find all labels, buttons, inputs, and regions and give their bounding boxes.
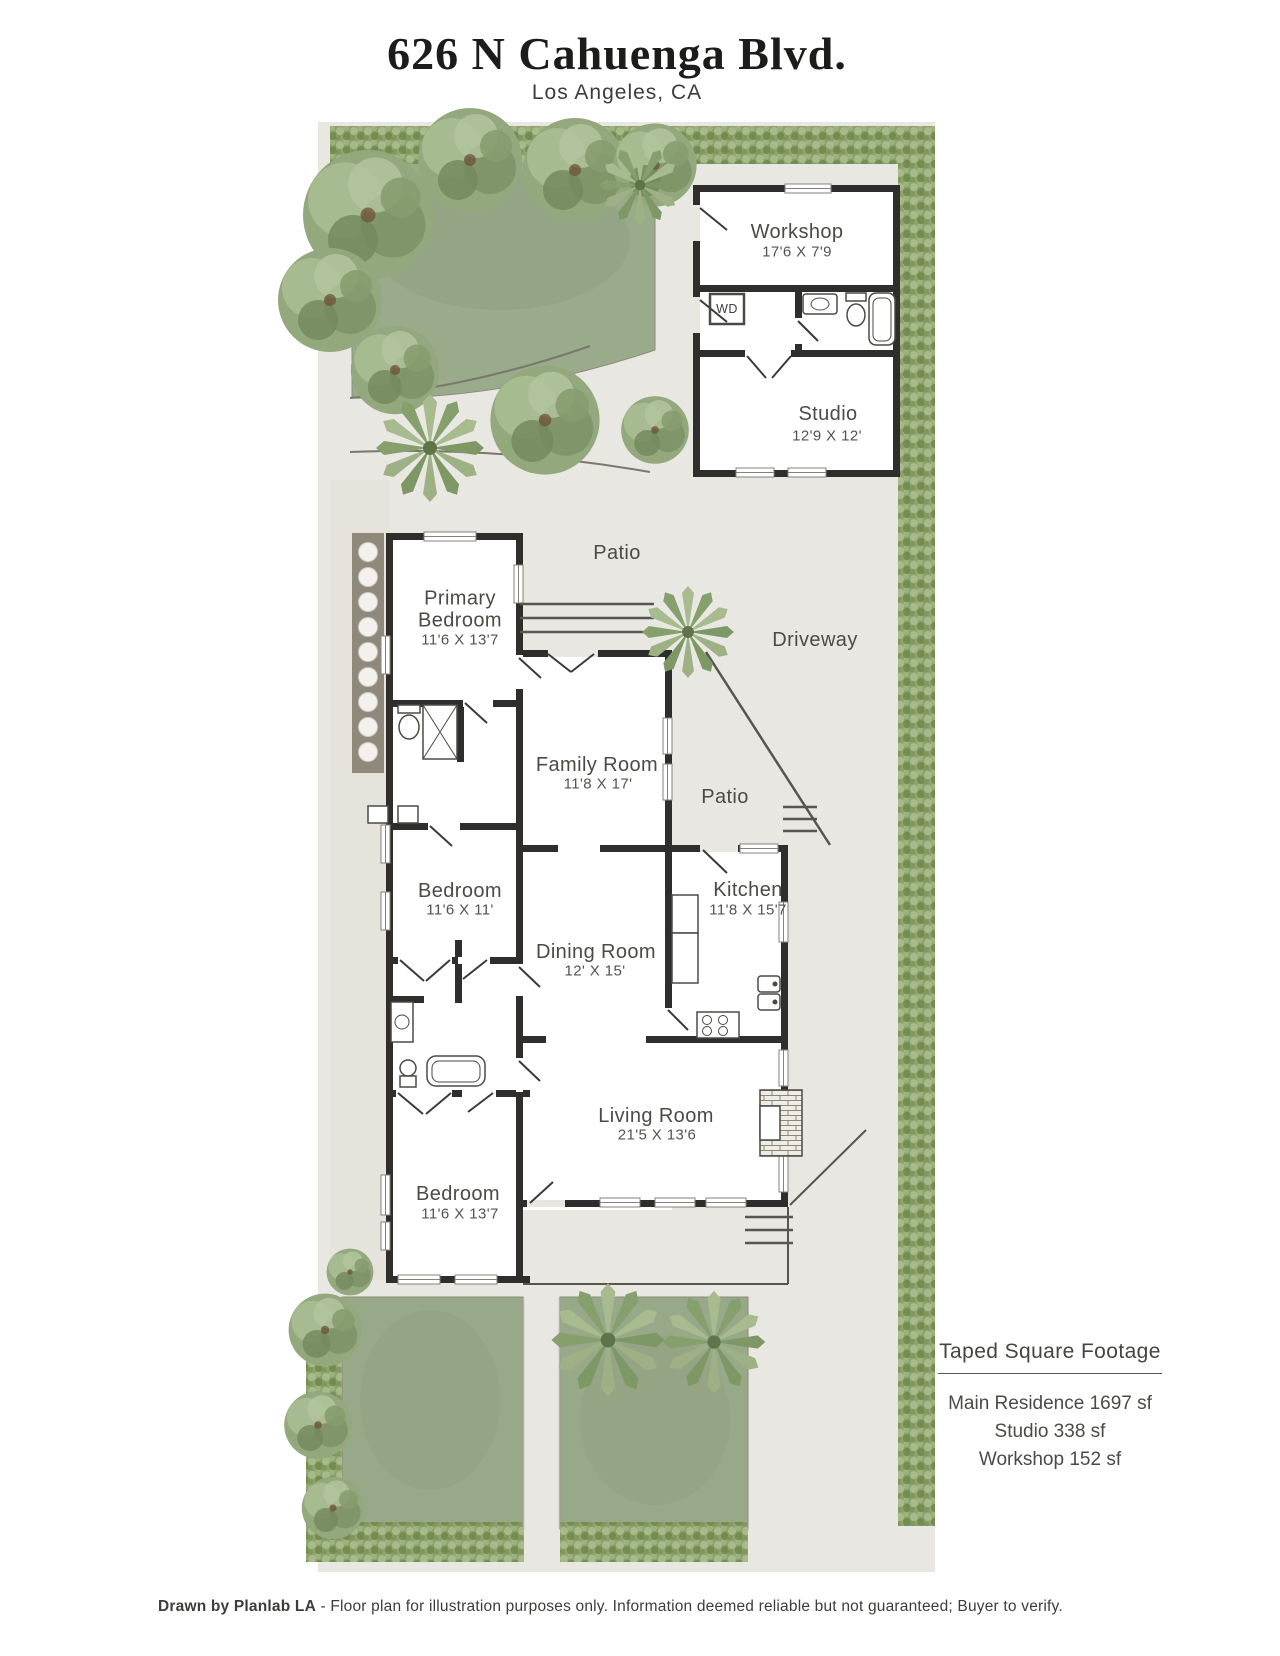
square-footage-block: Taped Square Footage Main Residence 1697…: [938, 1340, 1162, 1474]
footer-disclaimer: Drawn by Planlab LA - Floor plan for ill…: [158, 1598, 1063, 1616]
pedestal-sink: [400, 1060, 416, 1076]
label-studio-dims: 12'9 X 12': [792, 429, 862, 446]
label-bedroom-front: Bedroom: [416, 1183, 500, 1205]
label-washer-dryer: WD: [716, 302, 738, 316]
toilet: [846, 293, 866, 301]
label-primary-bedroom-dims: 11'6 X 13'7: [421, 633, 498, 650]
label-living-room: Living Room: [598, 1105, 714, 1127]
label-dining-room: Dining Room: [536, 941, 656, 963]
label-patio-lower: Patio: [701, 786, 749, 808]
sink: [398, 806, 418, 823]
toilet: [398, 705, 420, 713]
label-family-room-dims: 11'8 X 17': [564, 777, 633, 794]
page-root: { "header": { "title": "626 N Cahuenga B…: [0, 0, 1280, 1656]
label-family-room: Family Room: [536, 754, 658, 776]
label-bedroom-middle: Bedroom: [418, 880, 502, 902]
label-primary-bedroom: Primary Bedroom: [395, 588, 525, 633]
refrigerator: [672, 895, 698, 933]
footer-credit: Drawn by Planlab LA: [158, 1598, 316, 1615]
label-living-room-dims: 21'5 X 13'6: [618, 1128, 697, 1145]
label-kitchen-dims: 11'8 X 15'7: [709, 903, 786, 920]
stepping-stone-path: [352, 533, 384, 773]
footage-main-residence: Main Residence 1697 sf: [938, 1390, 1162, 1418]
footage-studio: Studio 338 sf: [938, 1418, 1162, 1446]
sink: [803, 294, 837, 314]
footage-workshop: Workshop 152 sf: [938, 1446, 1162, 1474]
label-driveway: Driveway: [772, 629, 857, 651]
counter: [672, 933, 698, 983]
vanity-sink: [391, 1002, 413, 1042]
label-workshop: Workshop: [751, 221, 844, 243]
label-studio: Studio: [798, 403, 857, 425]
sink: [368, 806, 388, 823]
label-workshop-dims: 17'6 X 7'9: [762, 245, 832, 262]
label-bedroom-front-dims: 11'6 X 13'7: [421, 1207, 498, 1224]
label-kitchen: Kitchen: [713, 879, 783, 901]
label-patio-upper: Patio: [593, 542, 641, 564]
label-bedroom-middle-dims: 11'6 X 11': [426, 903, 494, 920]
square-footage-heading: Taped Square Footage: [938, 1340, 1162, 1374]
footer-text: - Floor plan for illustration purposes o…: [316, 1598, 1063, 1615]
label-dining-room-dims: 12' X 15': [564, 964, 625, 981]
